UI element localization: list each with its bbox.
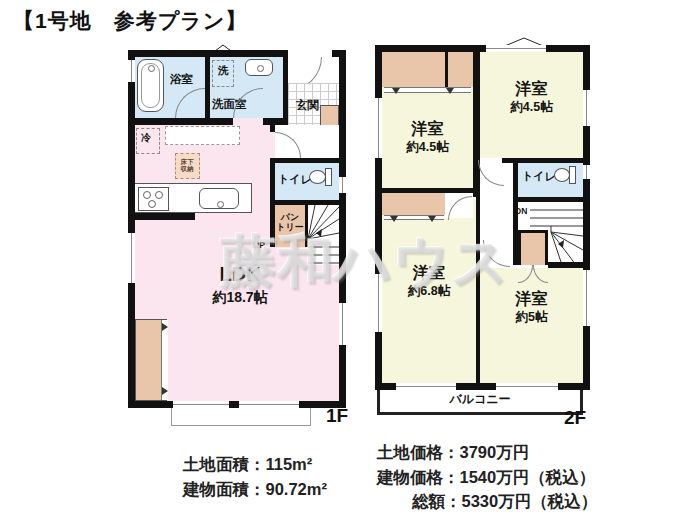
closet	[382, 52, 445, 87]
bedroom-se-label-group: 洋室 約5帖	[480, 290, 583, 325]
window	[583, 165, 590, 179]
room-door-arc	[483, 240, 510, 267]
window	[173, 401, 229, 408]
page-title: 【1号地 参考プラン】	[13, 7, 247, 35]
slide-arrow-icon	[446, 88, 454, 94]
counter-dashed	[165, 126, 240, 145]
window	[375, 98, 382, 158]
toilet-tank-icon	[325, 168, 332, 186]
area-summary: 土地面積：115m² 建物面積：90.72m²	[183, 452, 327, 501]
bathtub-icon	[137, 59, 164, 112]
land-area: 土地面積：115m²	[183, 452, 327, 477]
closet	[448, 52, 473, 87]
total-price: 総額：5330万円（税込）	[377, 489, 597, 514]
sink-drain-dot	[257, 65, 264, 72]
bedroom-sw-size: 約6.8帖	[382, 284, 476, 298]
washing-machine-label: 洗	[218, 65, 229, 76]
bedroom-nw-size: 約4.5帖	[382, 140, 473, 154]
closet	[518, 230, 548, 265]
floor1-plan: 浴室 洗 洗面室 玄関 トイレ	[128, 50, 346, 408]
slide-arrow-icon	[162, 323, 168, 331]
faucet-dot-icon	[148, 65, 155, 72]
slide-arrow-icon	[392, 88, 400, 94]
bedroom-sw-label: 洋室	[382, 264, 476, 282]
wall	[205, 57, 210, 118]
fridge-space: 冷	[136, 128, 160, 154]
land-price: 土地価格：3790万円	[377, 440, 597, 465]
floor2-label: 2F	[564, 407, 586, 429]
kitchen-sink-icon	[199, 188, 239, 209]
bedroom-ne-size: 約4.5帖	[480, 100, 583, 114]
underfloor-storage-label: 床下 収納	[176, 158, 198, 173]
window	[128, 60, 135, 82]
bedroom-nw-label: 洋室	[382, 120, 473, 138]
toilet-label: トイレ	[278, 174, 312, 186]
toilet-icon	[554, 168, 570, 182]
balcony: バルコニー	[377, 390, 583, 415]
stove-icon	[138, 187, 169, 211]
window	[486, 45, 546, 52]
floor2-plan: 洋室 約4.5帖 洋室 約4.5帖 トイレ DN	[375, 45, 590, 390]
slide-arrow-icon	[162, 387, 168, 395]
bathroom-label: 浴室	[170, 73, 193, 85]
window	[128, 233, 135, 283]
burner-dot	[155, 191, 163, 199]
pantry: パン トリー	[275, 205, 305, 247]
up-label: UP	[253, 241, 265, 250]
bedroom-se-label: 洋室	[480, 290, 583, 308]
hall-door-arc	[478, 160, 504, 186]
kitchen-counter	[135, 183, 252, 213]
closet	[382, 193, 445, 215]
price-summary: 土地価格：3790万円 建物価格：1540万円（税込） 総額：5330万円（税込…	[377, 440, 597, 514]
window	[396, 383, 456, 390]
wall	[548, 262, 583, 268]
building-area: 建物面積：90.72m²	[183, 477, 327, 502]
pantry-label: パン トリー	[275, 212, 305, 233]
wall	[135, 118, 233, 125]
window	[496, 383, 558, 390]
wall	[270, 118, 275, 132]
bedroom-sw-label-group: 洋室 約6.8帖	[382, 264, 476, 299]
ldk-label: LDK	[185, 263, 295, 286]
burner-dot	[143, 191, 151, 199]
bedroom-southeast	[480, 268, 583, 383]
fridge-label: 冷	[141, 133, 151, 144]
window	[583, 270, 590, 326]
ldk-size-label: 約18.7帖	[185, 289, 295, 305]
burner-dot	[148, 200, 156, 208]
sink-icon	[245, 59, 273, 76]
floor-plan-page: 【1号地 参考プラン】 浴室 洗 洗面室	[0, 0, 700, 525]
window	[339, 177, 346, 193]
bedroom-se-size: 約5帖	[480, 310, 583, 324]
building-price: 建物価格：1540万円（税込）	[377, 465, 597, 490]
washing-machine-box: 洗	[212, 60, 234, 87]
bedroom-ne-label: 洋室	[480, 80, 583, 98]
toilet-label: トイレ	[522, 171, 556, 183]
kitchen-wall	[135, 213, 195, 220]
balcony-label: バルコニー	[380, 393, 580, 407]
toilet-icon	[309, 170, 326, 184]
window	[239, 401, 299, 408]
slide-arrow-icon	[390, 216, 398, 222]
slide-arrow-icon	[428, 216, 436, 222]
underfloor-storage: 床下 収納	[175, 153, 200, 179]
toilet-tank-icon	[569, 166, 576, 184]
bedroom-nw-label-group: 洋室 約4.5帖	[382, 120, 473, 155]
floor1-label: 1F	[326, 405, 348, 427]
window	[339, 303, 346, 345]
wall	[473, 52, 480, 197]
terrace	[171, 408, 311, 426]
stairs-up	[308, 205, 339, 265]
entrance-label: 玄関	[296, 99, 319, 111]
sink-drain-dot	[217, 201, 224, 208]
window	[583, 90, 590, 126]
ldk-label-group: LDK 約18.7帖	[185, 263, 295, 305]
bedroom-ne-label-group: 洋室 約4.5帖	[480, 80, 583, 115]
window	[375, 274, 382, 332]
